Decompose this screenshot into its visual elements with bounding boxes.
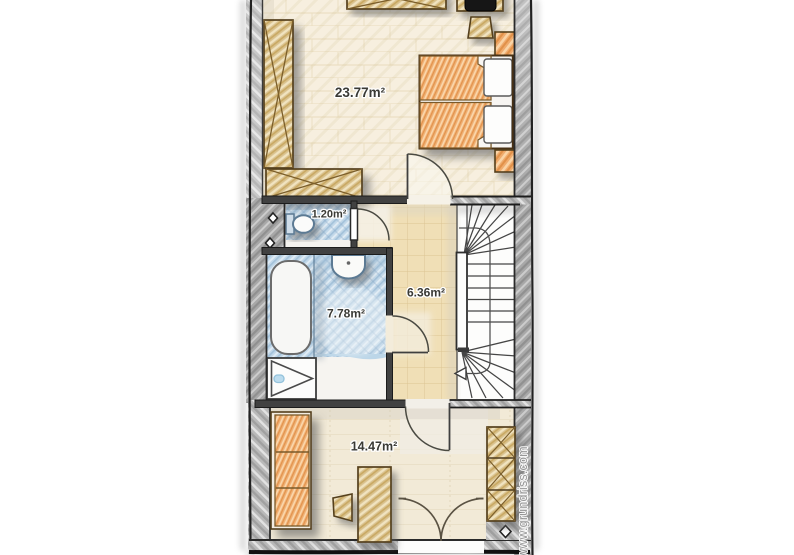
svg-text:7.78m²: 7.78m² <box>327 307 365 321</box>
svg-text:6.36m²: 6.36m² <box>407 286 445 300</box>
svg-text:1.20m²: 1.20m² <box>312 209 347 221</box>
svg-text:23.77m²: 23.77m² <box>335 85 386 100</box>
svg-text:14.47m²: 14.47m² <box>351 440 398 454</box>
svg-text:www.grundriss.com: www.grundriss.com <box>516 446 530 555</box>
